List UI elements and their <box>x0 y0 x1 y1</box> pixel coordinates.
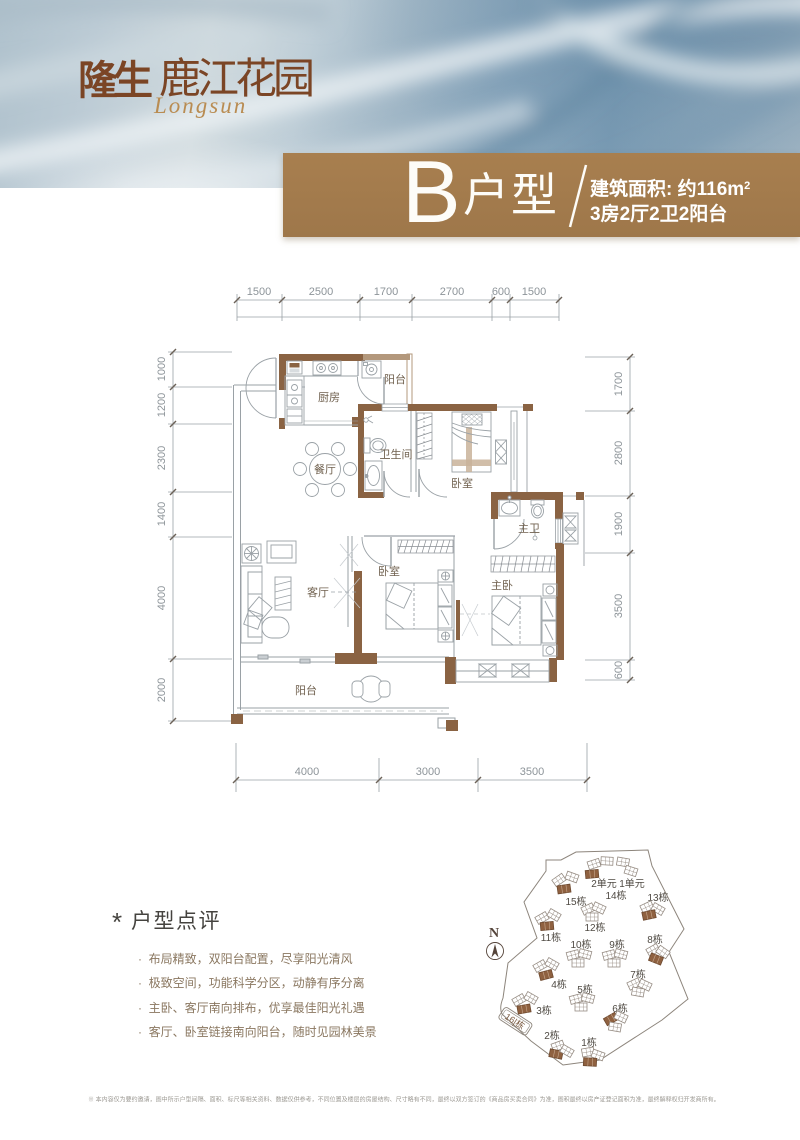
svg-text:4000: 4000 <box>156 586 168 610</box>
svg-text:3000: 3000 <box>416 766 440 778</box>
svg-text:客厅: 客厅 <box>307 585 329 599</box>
svg-text:1栋: 1栋 <box>581 1036 597 1049</box>
svg-text:1700: 1700 <box>613 372 625 396</box>
svg-text:2栋: 2栋 <box>544 1029 560 1042</box>
svg-text:600: 600 <box>613 661 625 679</box>
svg-text:卧室: 卧室 <box>378 564 400 578</box>
svg-text:主卫: 主卫 <box>518 522 540 535</box>
svg-text:15栋: 15栋 <box>565 895 586 908</box>
svg-text:2800: 2800 <box>613 441 625 465</box>
svg-text:N: N <box>489 926 499 941</box>
svg-text:11栋: 11栋 <box>541 931 561 944</box>
svg-text:阳台: 阳台 <box>295 683 317 697</box>
svg-text:12栋: 12栋 <box>584 921 605 934</box>
svg-text:卧室: 卧室 <box>451 476 473 490</box>
svg-text:16|栋: 16|栋 <box>503 1011 527 1032</box>
svg-text:14栋: 14栋 <box>605 889 626 902</box>
svg-text:2700: 2700 <box>440 286 464 298</box>
svg-text:2000: 2000 <box>156 678 168 702</box>
svg-text:1000: 1000 <box>156 357 168 381</box>
svg-text:4栋: 4栋 <box>551 978 567 991</box>
svg-text:餐厅: 餐厅 <box>314 462 336 476</box>
svg-text:1400: 1400 <box>156 502 168 526</box>
svg-text:2300: 2300 <box>156 446 168 470</box>
svg-text:1200: 1200 <box>156 393 168 417</box>
svg-text:3500: 3500 <box>520 766 544 778</box>
svg-text:卫生间: 卫生间 <box>380 447 413 461</box>
svg-text:阳台: 阳台 <box>384 372 406 386</box>
svg-text:厨房: 厨房 <box>318 391 340 404</box>
svg-text:600: 600 <box>492 286 510 298</box>
svg-text:1单元: 1单元 <box>619 878 645 890</box>
svg-text:1700: 1700 <box>374 286 398 298</box>
svg-text:1500: 1500 <box>522 286 546 298</box>
svg-text:3500: 3500 <box>613 594 625 618</box>
svg-text:2单元: 2单元 <box>591 878 617 890</box>
svg-text:4000: 4000 <box>295 766 319 778</box>
svg-text:1500: 1500 <box>247 286 271 298</box>
svg-text:1900: 1900 <box>613 512 625 536</box>
svg-text:2500: 2500 <box>309 286 333 298</box>
svg-text:3栋: 3栋 <box>536 1004 552 1017</box>
svg-text:主卧: 主卧 <box>491 579 513 592</box>
